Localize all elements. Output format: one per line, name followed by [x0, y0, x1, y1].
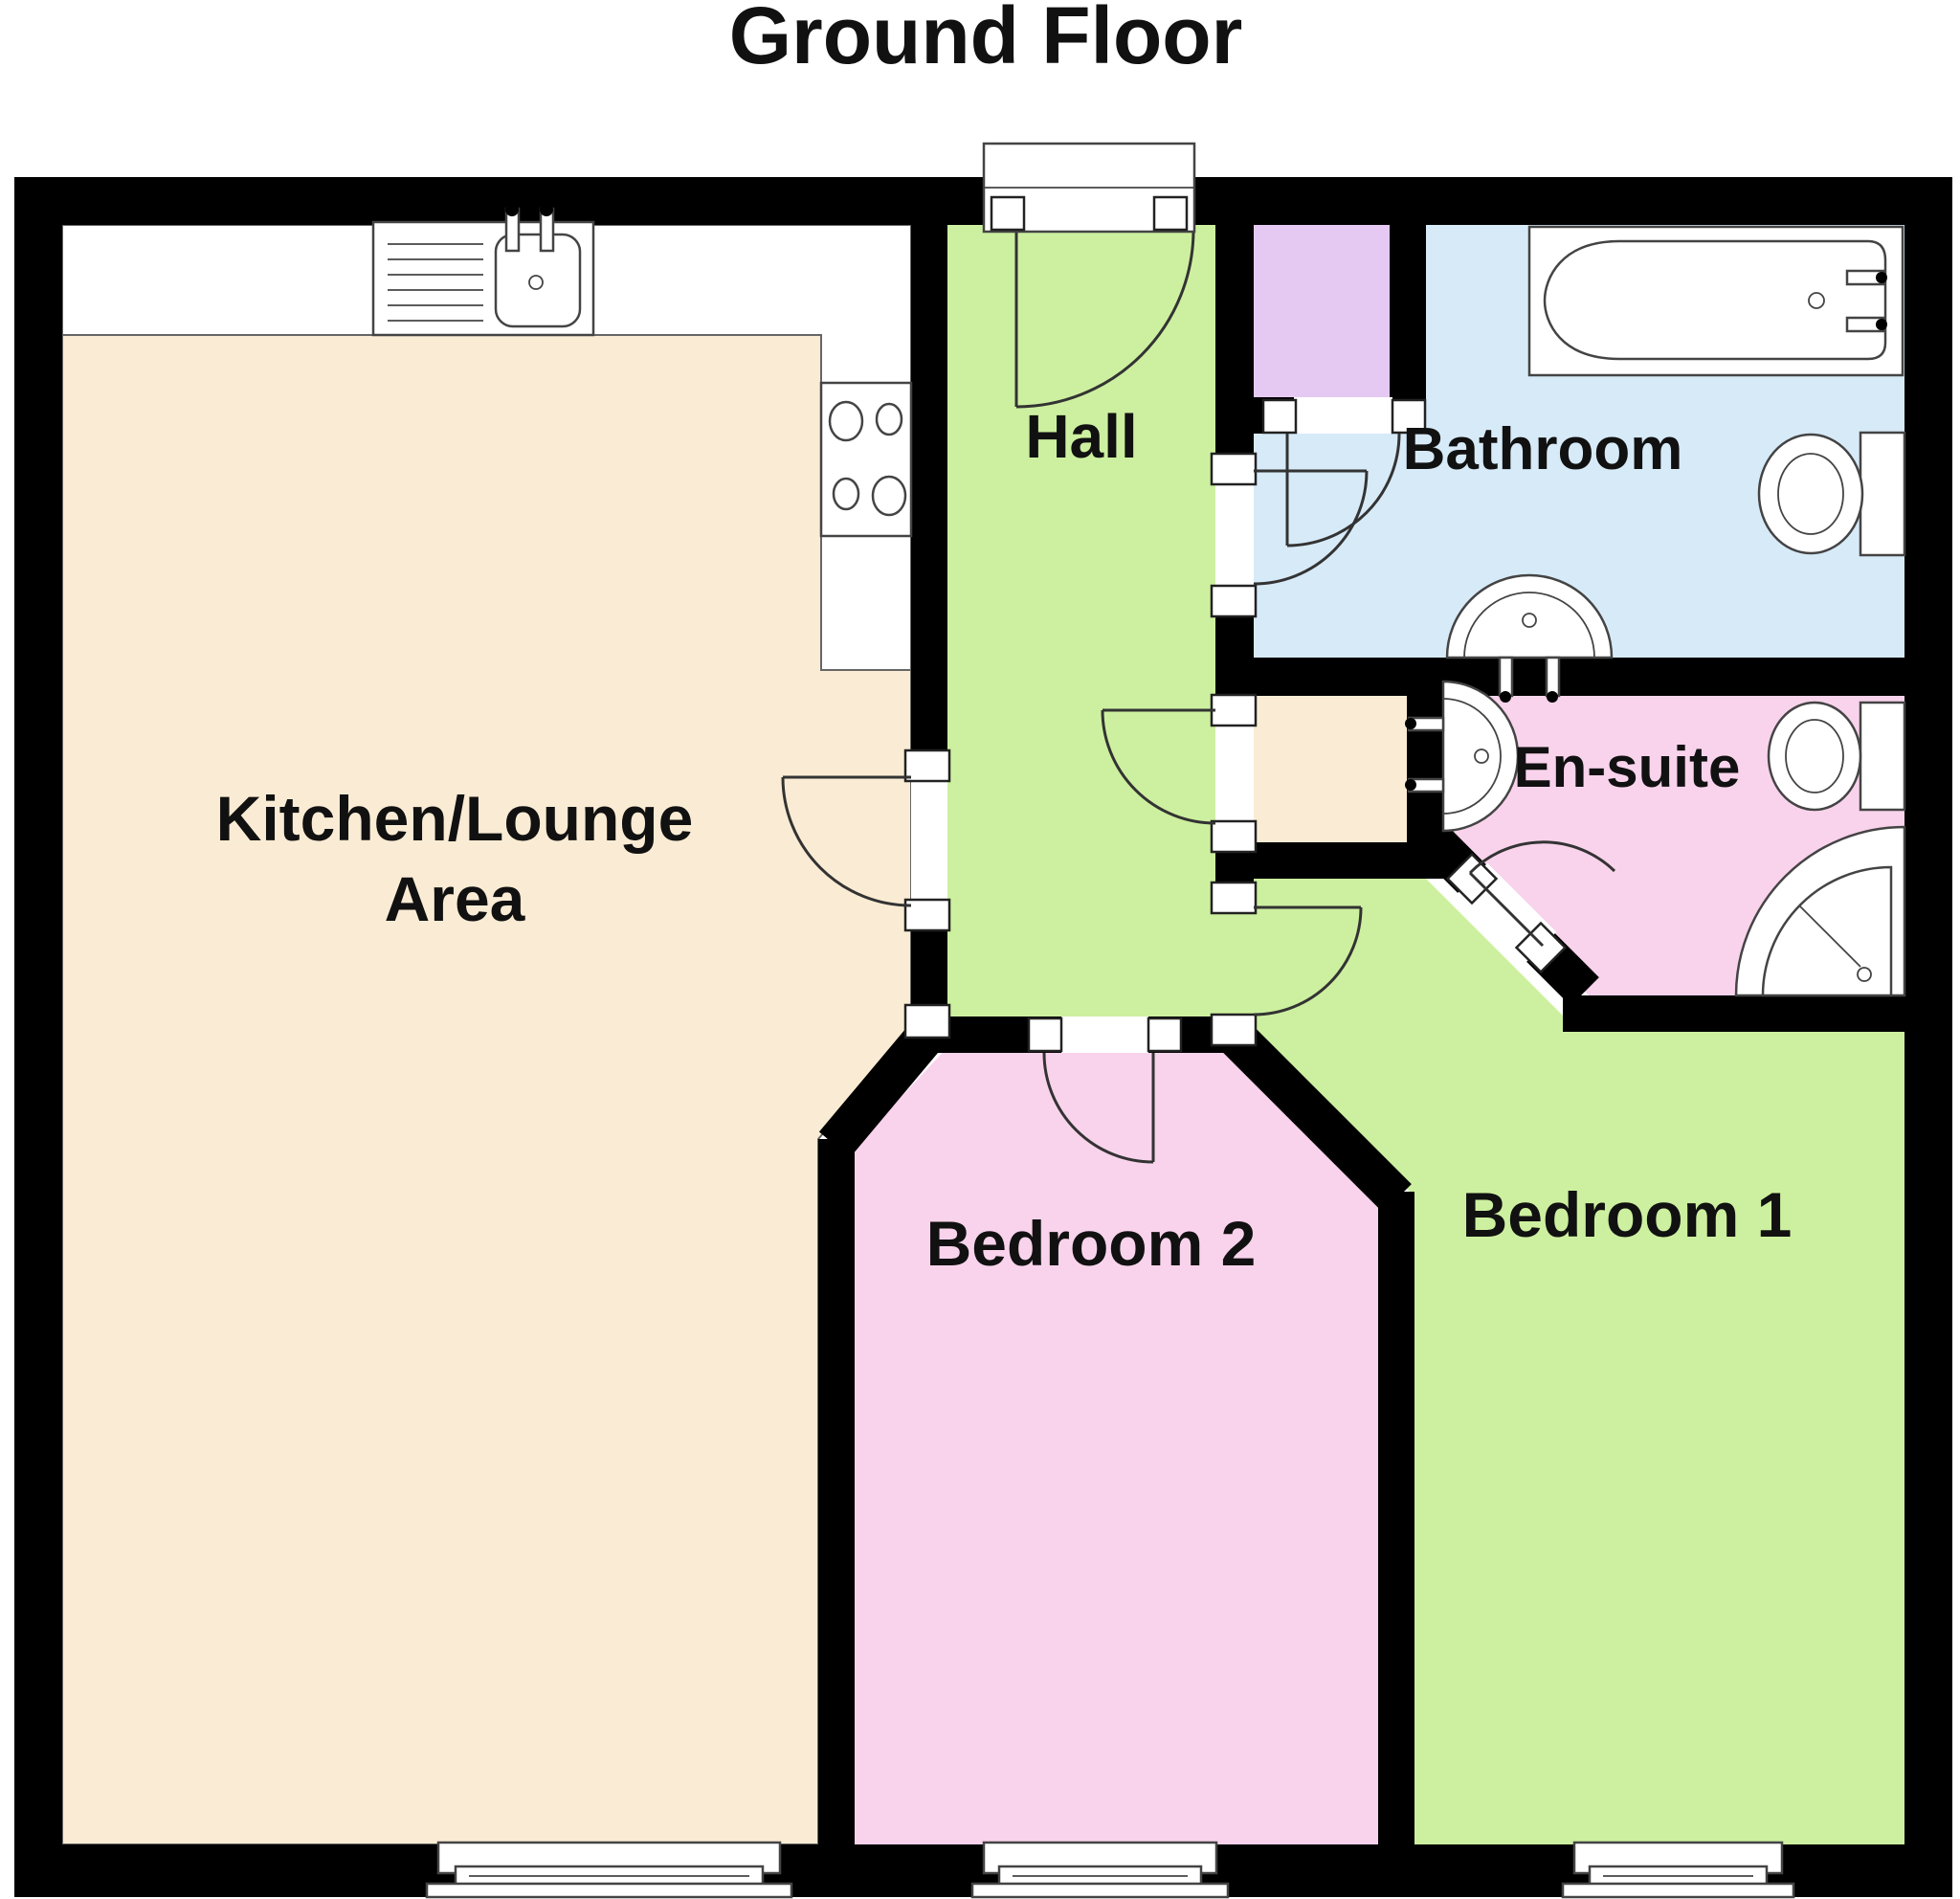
label-kitchen-line1: Kitchen/Lounge: [216, 783, 694, 854]
bathroom-doorway: [1215, 484, 1254, 586]
door-jamb: [905, 750, 949, 781]
door-jamb: [905, 1005, 949, 1038]
label-kitchen-line2: Area: [385, 863, 526, 934]
sink-icon: [373, 203, 593, 335]
door-jamb: [1212, 695, 1256, 726]
door-jamb: [1212, 586, 1256, 616]
door-jamb: [1148, 1018, 1181, 1051]
window-bedroom1: [1563, 1843, 1793, 1897]
label-bedroom2: Bedroom 2: [926, 1208, 1257, 1279]
door-jamb: [1212, 1015, 1256, 1045]
door-jamb: [1263, 400, 1296, 433]
label-ensuite: En-suite: [1514, 735, 1741, 799]
bathtub-icon: [1529, 227, 1903, 375]
wall-bed2-west: [818, 1139, 855, 1844]
floor-plan: Ground Floor Kitchen/Lounge Area Hall Ba…: [0, 0, 1960, 1899]
room-cupboard: [1254, 225, 1390, 397]
floor-plan-canvas: Ground Floor Kitchen/Lounge Area Hall Ba…: [0, 0, 1960, 1899]
label-bedroom1: Bedroom 1: [1462, 1179, 1793, 1250]
wall-bed1-west: [1378, 1192, 1414, 1844]
door-jamb: [1029, 1018, 1061, 1051]
kitchen-doorway: [911, 781, 947, 900]
wall-outer-left: [14, 177, 62, 1897]
door-jamb: [1212, 882, 1256, 913]
hob-icon: [821, 383, 911, 536]
wall-outer-right: [1904, 177, 1952, 1897]
door-jamb: [1212, 454, 1256, 484]
entrance-door-frame: [984, 144, 1194, 232]
window-bedroom2: [972, 1843, 1228, 1897]
room-store: [1254, 696, 1407, 842]
cupboard-doorway: [1294, 397, 1392, 434]
page-title: Ground Floor: [729, 0, 1243, 80]
toilet-icon: [1759, 433, 1904, 555]
bedroom2-doorway: [1061, 1017, 1148, 1053]
ensuite-toilet-icon: [1769, 703, 1904, 810]
door-jamb: [905, 900, 949, 930]
label-hall: Hall: [1025, 402, 1137, 471]
store-doorway: [1215, 726, 1254, 821]
wall-ensuite-south: [1563, 995, 1904, 1032]
room-hall: [947, 225, 1215, 1053]
door-jamb: [1212, 821, 1256, 852]
label-bathroom: Bathroom: [1403, 416, 1683, 482]
bedroom1-doorway-floor: [1215, 909, 1254, 1019]
room-kitchen-lounge: [62, 335, 911, 1844]
window-kitchen: [427, 1843, 791, 1897]
